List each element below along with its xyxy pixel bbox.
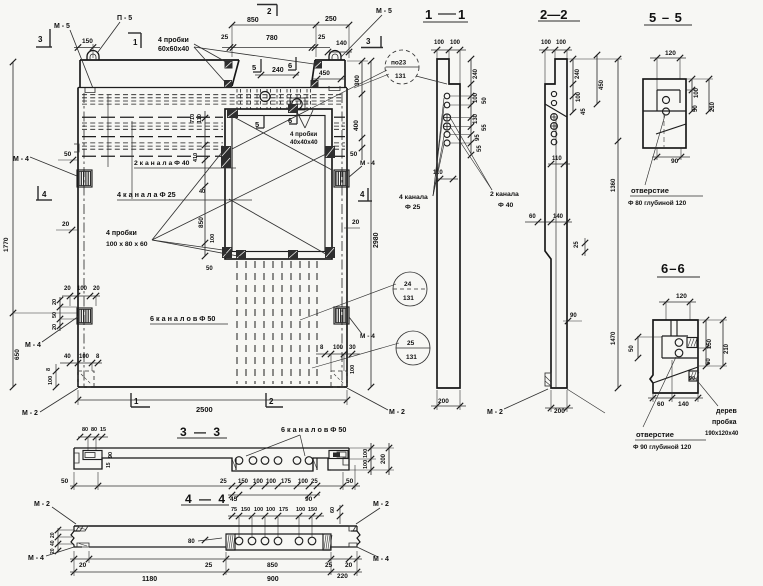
svg-text:90: 90 xyxy=(689,376,695,382)
svg-text:100: 100 xyxy=(434,40,445,46)
svg-text:50: 50 xyxy=(64,151,72,158)
svg-text:50: 50 xyxy=(350,151,358,158)
svg-text:М - 4: М - 4 xyxy=(25,342,41,349)
svg-text:М - 2: М - 2 xyxy=(389,409,405,416)
svg-text:6 к а н а л о в Ф 50: 6 к а н а л о в Ф 50 xyxy=(281,425,346,434)
svg-text:1: 1 xyxy=(425,7,432,22)
svg-text:М - 4: М - 4 xyxy=(13,156,29,163)
svg-text:8: 8 xyxy=(96,354,100,360)
svg-text:175: 175 xyxy=(279,507,288,513)
svg-text:150: 150 xyxy=(308,507,317,513)
svg-text:120: 120 xyxy=(665,50,676,57)
svg-text:50: 50 xyxy=(693,105,699,112)
svg-text:150: 150 xyxy=(241,507,250,513)
svg-text:М - 4: М - 4 xyxy=(373,556,389,563)
svg-text:131: 131 xyxy=(406,354,417,361)
svg-text:100: 100 xyxy=(576,91,582,102)
svg-text:30: 30 xyxy=(349,345,356,351)
svg-text:1: 1 xyxy=(134,397,139,406)
svg-text:3: 3 xyxy=(366,37,371,46)
svg-text:отверстие: отверстие xyxy=(631,186,669,195)
svg-text:240: 240 xyxy=(473,68,479,79)
svg-text:55: 55 xyxy=(482,124,488,131)
svg-text:М - 2: М - 2 xyxy=(34,501,50,508)
svg-text:40: 40 xyxy=(64,354,71,360)
svg-text:Ф 80 глубиной 120: Ф 80 глубиной 120 xyxy=(628,199,687,207)
svg-text:40: 40 xyxy=(50,540,56,546)
svg-text:45: 45 xyxy=(581,108,587,115)
svg-text:210: 210 xyxy=(710,101,716,112)
svg-text:100: 100 xyxy=(363,460,369,469)
svg-text:2 канала: 2 канала xyxy=(490,191,519,198)
svg-text:8: 8 xyxy=(320,345,324,351)
svg-text:100: 100 xyxy=(363,449,369,458)
svg-text:110: 110 xyxy=(197,114,203,123)
svg-text:отверстие: отверстие xyxy=(636,430,674,439)
svg-text:5 – 5: 5 – 5 xyxy=(649,10,683,25)
svg-text:25: 25 xyxy=(311,479,318,485)
svg-text:6–6: 6–6 xyxy=(661,261,686,276)
svg-text:175: 175 xyxy=(281,479,292,485)
svg-text:50: 50 xyxy=(52,312,58,318)
svg-text:25: 25 xyxy=(574,241,580,248)
svg-text:400: 400 xyxy=(353,120,360,131)
svg-text:150: 150 xyxy=(707,338,713,349)
svg-text:40х40х40: 40х40х40 xyxy=(290,139,318,146)
svg-text:100: 100 xyxy=(450,40,461,46)
svg-text:190х120х40: 190х120х40 xyxy=(705,431,739,437)
svg-text:М - 4: М - 4 xyxy=(360,333,375,340)
svg-text:200: 200 xyxy=(381,453,387,464)
svg-text:15: 15 xyxy=(106,462,112,468)
svg-text:25: 25 xyxy=(318,34,326,41)
svg-text:4 пробки: 4 пробки xyxy=(106,229,137,237)
svg-text:1: 1 xyxy=(458,7,465,22)
svg-text:45: 45 xyxy=(230,496,238,503)
svg-text:200: 200 xyxy=(554,408,565,415)
svg-text:210: 210 xyxy=(724,343,730,354)
svg-text:55: 55 xyxy=(477,145,483,152)
svg-text:4 пробки: 4 пробки xyxy=(290,131,317,138)
svg-text:850: 850 xyxy=(267,562,278,569)
svg-text:20: 20 xyxy=(352,219,360,226)
svg-text:М - 5: М - 5 xyxy=(376,8,392,15)
svg-text:780: 780 xyxy=(266,35,278,42)
svg-text:2: 2 xyxy=(267,7,272,16)
svg-text:Ф 40: Ф 40 xyxy=(498,202,513,209)
svg-text:6: 6 xyxy=(288,61,292,70)
svg-text:50: 50 xyxy=(629,345,635,352)
svg-text:140: 140 xyxy=(336,40,347,47)
svg-text:М - 4: М - 4 xyxy=(28,555,44,562)
svg-text:М - 2: М - 2 xyxy=(373,501,389,508)
svg-text:450: 450 xyxy=(319,70,330,77)
svg-text:140: 140 xyxy=(553,214,564,220)
svg-text:М - 5: М - 5 xyxy=(54,23,70,30)
svg-text:95: 95 xyxy=(475,134,481,141)
svg-text:Ф 25: Ф 25 xyxy=(405,204,420,211)
svg-text:5: 5 xyxy=(252,63,256,72)
svg-text:100: 100 xyxy=(350,365,356,374)
svg-text:100: 100 xyxy=(253,479,264,485)
svg-text:100: 100 xyxy=(541,40,552,46)
svg-text:90: 90 xyxy=(305,496,313,503)
svg-text:20: 20 xyxy=(64,286,71,292)
svg-text:100: 100 xyxy=(556,40,567,46)
svg-text:24: 24 xyxy=(404,281,412,288)
svg-text:50: 50 xyxy=(482,97,488,104)
svg-text:100 х 80 х 60: 100 х 80 х 60 xyxy=(106,241,148,248)
svg-text:250: 250 xyxy=(325,16,337,23)
svg-text:130: 130 xyxy=(473,113,479,124)
svg-text:3 — 3: 3 — 3 xyxy=(180,425,222,439)
svg-text:4 к а н а л а Ф 25: 4 к а н а л а Ф 25 xyxy=(117,190,176,199)
svg-text:20: 20 xyxy=(79,562,87,569)
svg-text:Ф 90 глубиной 120: Ф 90 глубиной 120 xyxy=(633,443,692,451)
svg-text:25: 25 xyxy=(205,562,213,569)
svg-text:2980: 2980 xyxy=(373,232,380,248)
svg-text:2 к а н а л а Ф 40: 2 к а н а л а Ф 40 xyxy=(134,160,190,167)
svg-text:150: 150 xyxy=(238,479,249,485)
svg-text:20: 20 xyxy=(345,562,353,569)
svg-text:100: 100 xyxy=(298,479,309,485)
svg-text:90: 90 xyxy=(671,158,679,165)
svg-text:20: 20 xyxy=(93,286,100,292)
svg-text:900: 900 xyxy=(267,576,279,583)
svg-text:40: 40 xyxy=(199,189,205,195)
svg-text:100: 100 xyxy=(77,286,88,292)
svg-text:150: 150 xyxy=(82,38,93,45)
svg-text:1470: 1470 xyxy=(611,331,617,345)
svg-text:2500: 2500 xyxy=(196,405,213,414)
svg-text:410: 410 xyxy=(193,153,199,162)
svg-text:50: 50 xyxy=(61,478,69,485)
svg-text:по23: по23 xyxy=(391,60,407,67)
svg-text:100: 100 xyxy=(254,507,263,513)
svg-text:100: 100 xyxy=(266,479,277,485)
svg-text:240: 240 xyxy=(272,67,284,74)
svg-text:850: 850 xyxy=(198,217,205,228)
svg-text:4 канала: 4 канала xyxy=(399,194,428,201)
svg-text:220: 220 xyxy=(337,573,348,580)
svg-text:20: 20 xyxy=(62,221,70,228)
svg-text:300: 300 xyxy=(354,75,361,86)
svg-text:80: 80 xyxy=(82,427,88,433)
svg-text:1770: 1770 xyxy=(3,237,10,252)
svg-text:60х60х40: 60х60х40 xyxy=(158,46,189,53)
svg-text:100: 100 xyxy=(79,354,90,360)
svg-text:75: 75 xyxy=(231,507,237,513)
svg-text:131: 131 xyxy=(395,73,406,80)
svg-text:100: 100 xyxy=(266,507,275,513)
svg-text:131: 131 xyxy=(403,295,414,302)
svg-text:90: 90 xyxy=(108,452,114,458)
svg-text:120: 120 xyxy=(676,293,687,300)
svg-text:25: 25 xyxy=(220,479,227,485)
svg-text:2: 2 xyxy=(269,397,274,406)
svg-text:200: 200 xyxy=(438,398,449,405)
svg-text:1: 1 xyxy=(133,38,138,47)
svg-text:4: 4 xyxy=(360,190,365,199)
svg-text:100: 100 xyxy=(473,92,479,103)
svg-text:М - 2: М - 2 xyxy=(487,409,503,416)
svg-text:П - 5: П - 5 xyxy=(117,15,132,22)
svg-text:650: 650 xyxy=(14,349,21,360)
svg-text:8: 8 xyxy=(46,368,52,371)
svg-text:140: 140 xyxy=(678,401,689,408)
svg-text:25: 25 xyxy=(407,340,415,347)
svg-text:100: 100 xyxy=(694,87,700,98)
svg-text:80: 80 xyxy=(91,427,97,433)
svg-text:20: 20 xyxy=(52,299,58,305)
svg-text:25: 25 xyxy=(221,34,229,41)
svg-text:450: 450 xyxy=(599,79,605,90)
svg-text:М - 2: М - 2 xyxy=(22,410,38,417)
svg-text:100: 100 xyxy=(333,345,344,351)
svg-text:60: 60 xyxy=(529,214,536,220)
svg-text:пробка: пробка xyxy=(712,418,737,426)
svg-text:6 к а н а л о в Ф 50: 6 к а н а л о в Ф 50 xyxy=(150,314,215,323)
svg-text:50: 50 xyxy=(346,478,354,485)
svg-text:дерев: дерев xyxy=(716,408,738,415)
svg-text:710: 710 xyxy=(190,114,196,123)
svg-text:4 — 4: 4 — 4 xyxy=(185,492,227,506)
svg-text:1360: 1360 xyxy=(611,178,617,192)
svg-text:4 пробки: 4 пробки xyxy=(158,36,189,44)
svg-text:100: 100 xyxy=(296,507,305,513)
svg-text:25: 25 xyxy=(325,562,333,569)
svg-text:3: 3 xyxy=(38,35,43,44)
svg-text:2—2: 2—2 xyxy=(540,7,567,22)
svg-text:100: 100 xyxy=(48,376,54,385)
svg-text:850: 850 xyxy=(247,17,259,24)
svg-text:М - 4: М - 4 xyxy=(360,160,375,167)
svg-text:60: 60 xyxy=(657,401,665,408)
svg-text:100: 100 xyxy=(210,234,216,243)
svg-text:1180: 1180 xyxy=(142,576,157,583)
svg-text:4: 4 xyxy=(42,190,47,199)
svg-text:60: 60 xyxy=(330,507,336,513)
svg-text:15: 15 xyxy=(100,427,106,433)
svg-text:80: 80 xyxy=(188,539,195,545)
svg-text:240: 240 xyxy=(575,68,581,79)
svg-text:50: 50 xyxy=(206,266,213,272)
svg-text:60: 60 xyxy=(706,358,712,365)
